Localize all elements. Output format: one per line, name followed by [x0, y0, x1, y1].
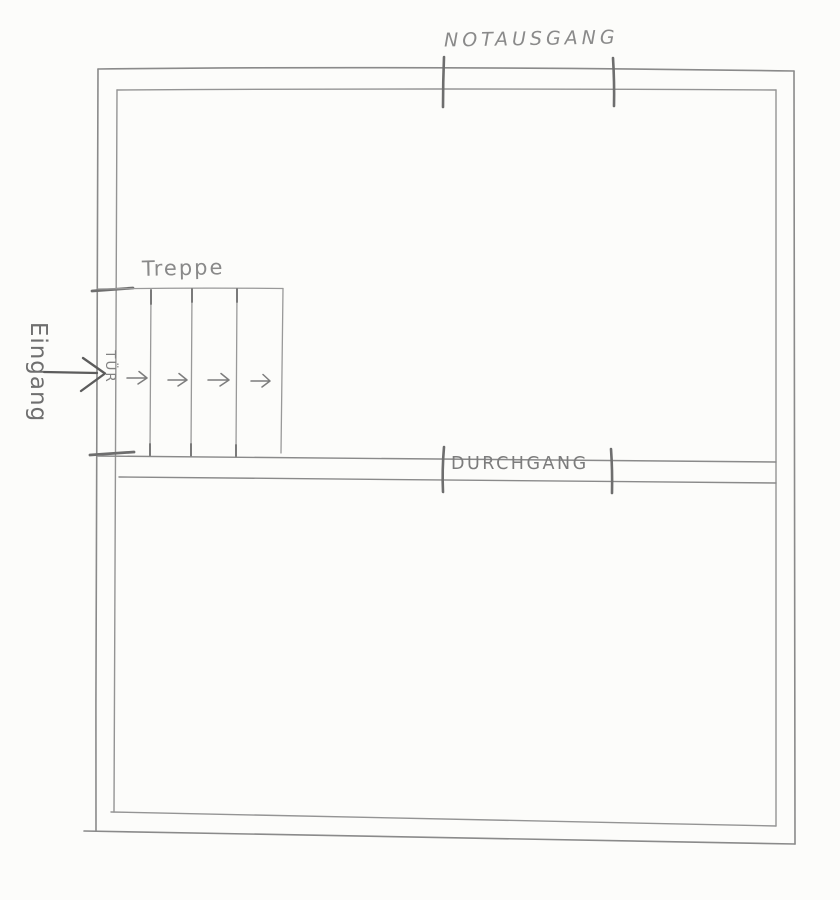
- entrance-label: Eingang: [23, 308, 49, 436]
- exit-tick-right: [613, 58, 614, 106]
- corridor-top-line: [98, 456, 776, 462]
- inner-wall-top: [117, 89, 776, 90]
- outer-wall-bottom: [84, 831, 795, 844]
- outer-wall-top: [98, 68, 794, 71]
- stair-riser: [150, 291, 151, 452]
- inner-wall-bottom: [111, 812, 776, 826]
- entrance-arrow: [44, 358, 105, 391]
- passage-label: DURCHGANG: [451, 456, 589, 474]
- exit-tick-left: [443, 57, 444, 107]
- stairs-label: Treppe: [142, 257, 225, 280]
- right-arrow-icon: [168, 374, 187, 387]
- passage-corridor: [98, 456, 776, 483]
- stair-riser: [236, 290, 237, 452]
- stair-riser: [191, 291, 192, 453]
- floor-plan-sketch: NOTAUSGANG Treppe TÜR Eingang DURCHGANG: [0, 0, 840, 900]
- stair-right-edge: [281, 289, 283, 454]
- right-arrow-icon: [251, 375, 270, 388]
- stair-riser-ticks: [150, 289, 237, 457]
- emergency-exit-label: NOTAUSGANG: [444, 28, 619, 50]
- staircase: [98, 288, 283, 453]
- step-direction-arrows: [127, 372, 270, 388]
- floor-plan-drawing: [0, 0, 840, 900]
- outer-wall-left: [96, 69, 98, 831]
- passage-tick-left: [443, 447, 444, 492]
- corridor-bottom-line: [119, 477, 776, 483]
- door-label: TÜR: [98, 335, 116, 399]
- right-arrow-icon: [208, 374, 229, 387]
- stair-top-edge: [98, 288, 283, 289]
- inner-wall-left: [114, 90, 117, 812]
- entrance-arrow-shaft: [44, 372, 97, 373]
- outer-wall-right: [794, 71, 795, 844]
- emergency-exit-ticks: [443, 57, 614, 107]
- right-arrow-icon: [127, 372, 147, 385]
- passage-tick-right: [611, 449, 612, 493]
